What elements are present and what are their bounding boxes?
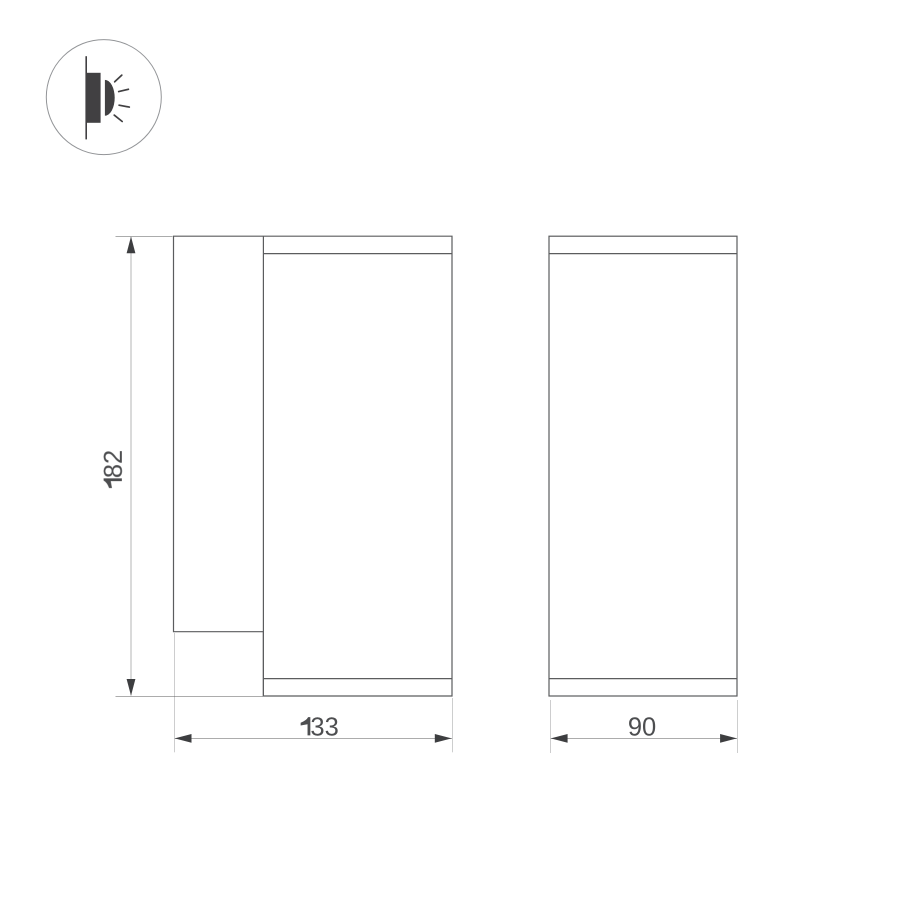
svg-text:82: 82 [100,450,128,478]
svg-text:90: 90 [628,713,656,741]
svg-text:33: 33 [310,713,338,741]
